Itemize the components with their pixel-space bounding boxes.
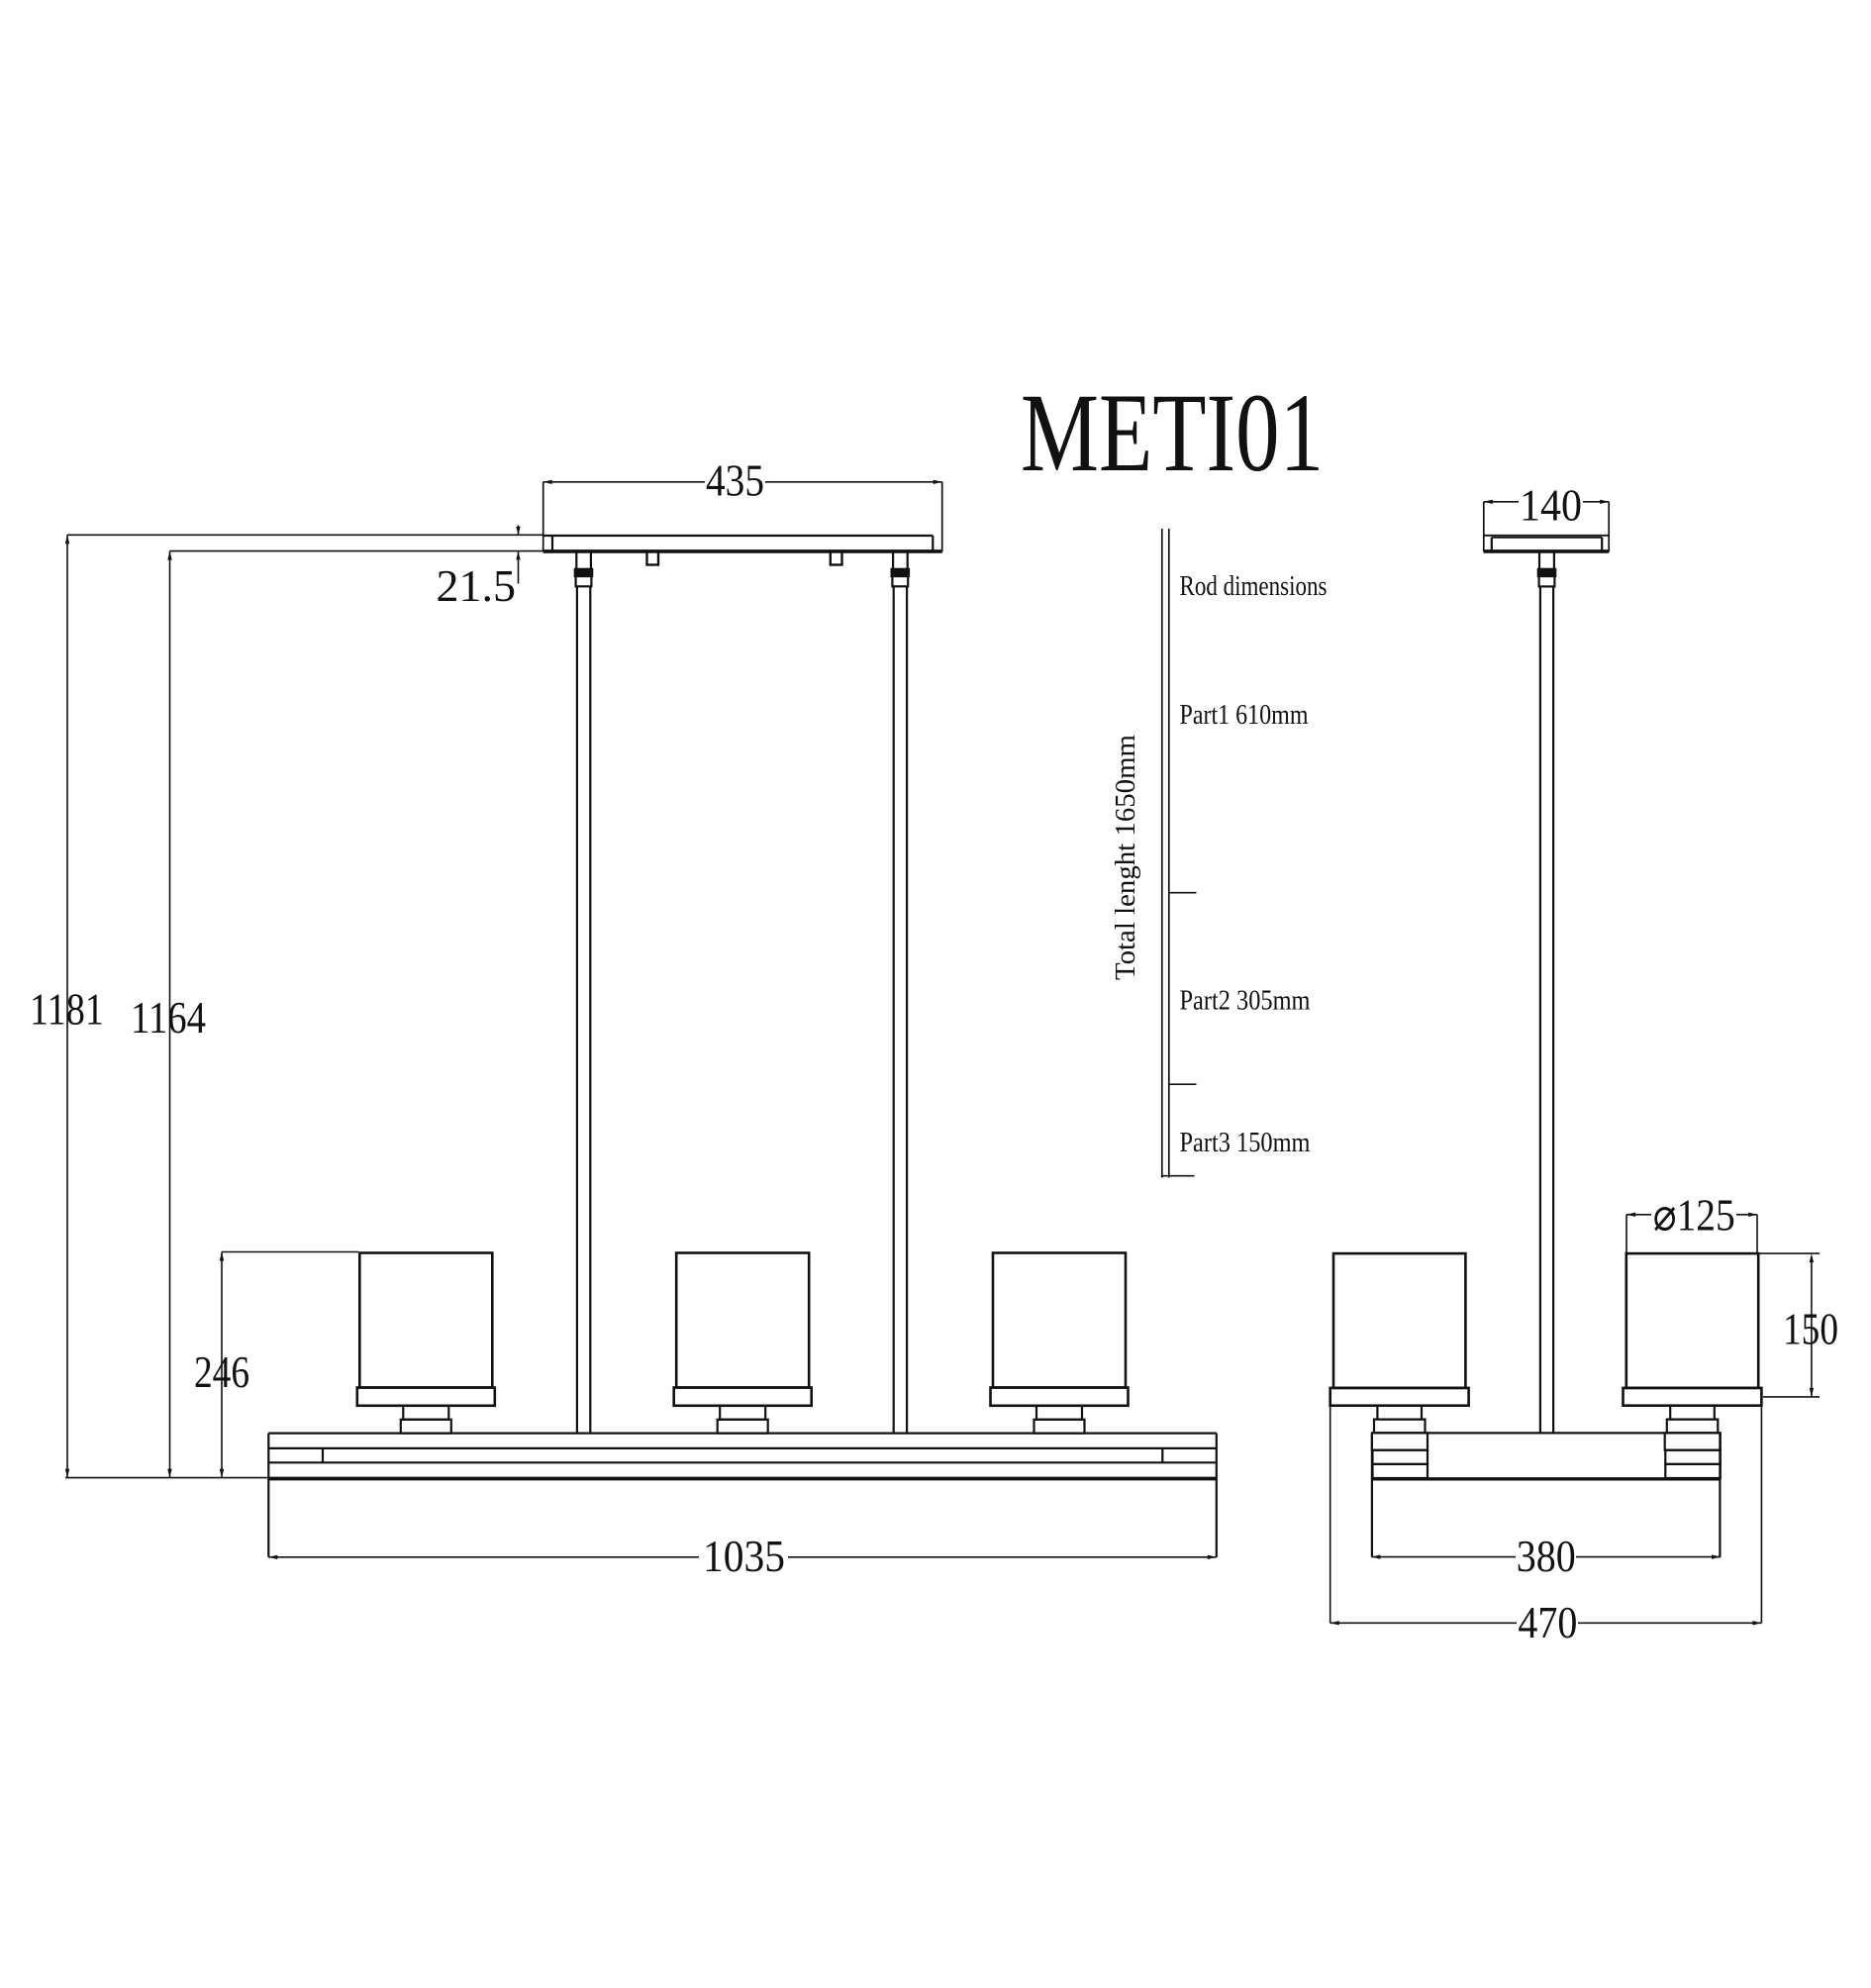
svg-text:435: 435 [706, 455, 764, 506]
svg-text:380: 380 [1517, 1531, 1576, 1581]
svg-text:246: 246 [194, 1346, 249, 1397]
svg-text:21.5: 21.5 [437, 560, 517, 611]
svg-text:1181: 1181 [30, 984, 104, 1035]
svg-text:METI01: METI01 [1021, 371, 1324, 495]
svg-text:1035: 1035 [703, 1531, 785, 1581]
svg-text:Part2 305mm: Part2 305mm [1180, 986, 1311, 1017]
svg-text:1164: 1164 [131, 992, 206, 1043]
svg-text:Part1 610mm: Part1 610mm [1180, 700, 1309, 731]
svg-text:Total lenght 1650mm: Total lenght 1650mm [1111, 735, 1141, 980]
svg-text:Part3 150mm: Part3 150mm [1180, 1128, 1311, 1158]
svg-text:140: 140 [1520, 480, 1582, 531]
svg-text:470: 470 [1518, 1597, 1577, 1647]
svg-text:150: 150 [1783, 1303, 1838, 1353]
svg-text:⌀125: ⌀125 [1653, 1190, 1735, 1241]
svg-text:Rod dimensions: Rod dimensions [1180, 571, 1328, 602]
